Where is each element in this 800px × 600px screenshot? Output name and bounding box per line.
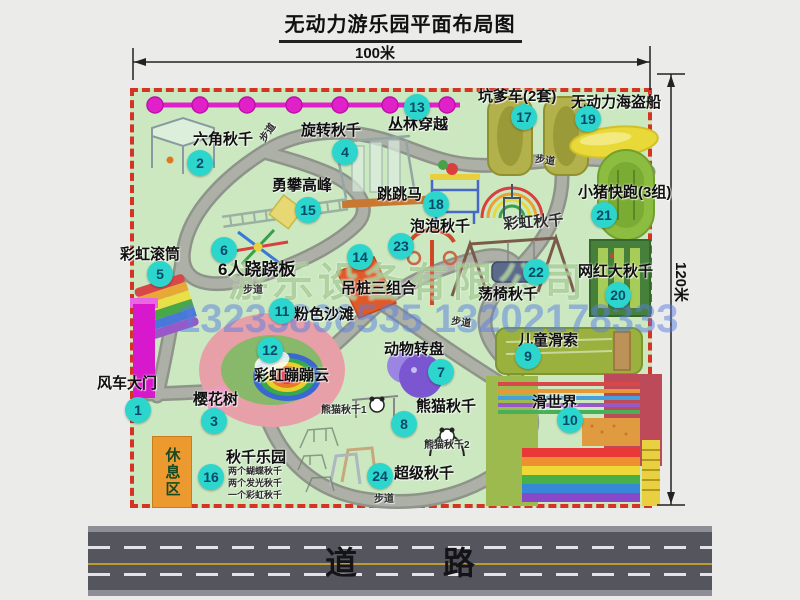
- road-label: 道 路: [88, 532, 712, 590]
- rest-area-box: 休息区: [152, 436, 192, 508]
- page-title-text: 无动力游乐园平面布局图: [279, 8, 522, 43]
- road: 道 路: [88, 526, 712, 596]
- watermark-phone: 13233806535 13202178333: [178, 297, 679, 342]
- dimension-width-label: 100米: [355, 42, 395, 63]
- page-title: 无动力游乐园平面布局图: [0, 8, 800, 43]
- playground-layout-map: 无动力游乐园平面布局图 100米 120米: [0, 0, 800, 600]
